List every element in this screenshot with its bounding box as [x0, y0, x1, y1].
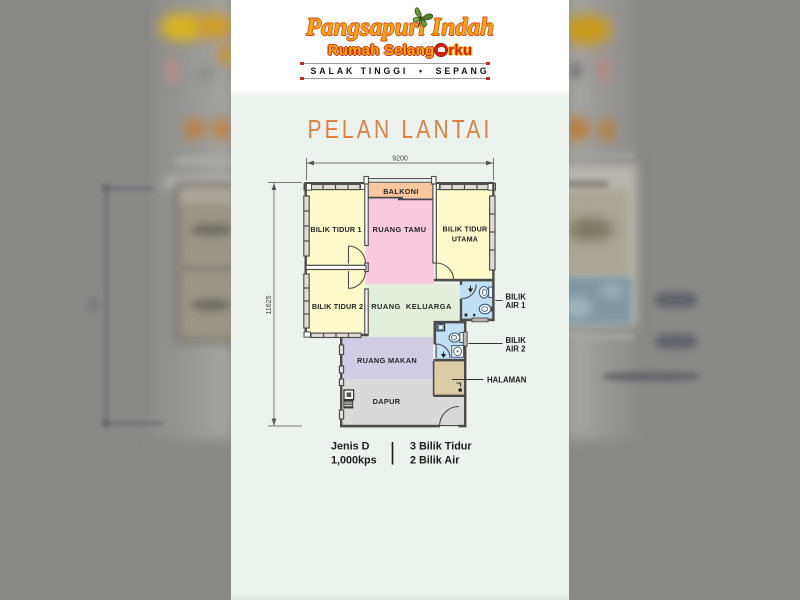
svg-text:Jenis D: Jenis D: [331, 441, 370, 453]
svg-text:RUANG TAMU: RUANG TAMU: [373, 225, 427, 234]
svg-text:UTAMA: UTAMA: [452, 235, 478, 244]
svg-text:1,000kps: 1,000kps: [331, 455, 377, 467]
svg-text:BILIK TIDUR 1: BILIK TIDUR 1: [310, 225, 361, 234]
svg-text:AIR 1: AIR 1: [506, 301, 527, 310]
svg-text:11625: 11625: [266, 295, 273, 314]
svg-text:BALKONI: BALKONI: [383, 187, 419, 196]
svg-text:HALAMAN: HALAMAN: [487, 376, 527, 385]
svg-text:BILIK TIDUR 2: BILIK TIDUR 2: [312, 302, 363, 311]
svg-text:9200: 9200: [392, 156, 408, 163]
svg-text:3 Bilik Tidur: 3 Bilik Tidur: [410, 441, 472, 453]
svg-text:BILIK TIDUR: BILIK TIDUR: [443, 225, 489, 234]
svg-text:RUANG KELUARGA: RUANG KELUARGA: [371, 302, 452, 311]
svg-text:AIR 2: AIR 2: [506, 345, 527, 354]
svg-text:2 Bilik Air: 2 Bilik Air: [410, 455, 460, 467]
svg-text:RUANG MAKAN: RUANG MAKAN: [357, 356, 417, 365]
svg-text:DAPUR: DAPUR: [373, 397, 401, 406]
